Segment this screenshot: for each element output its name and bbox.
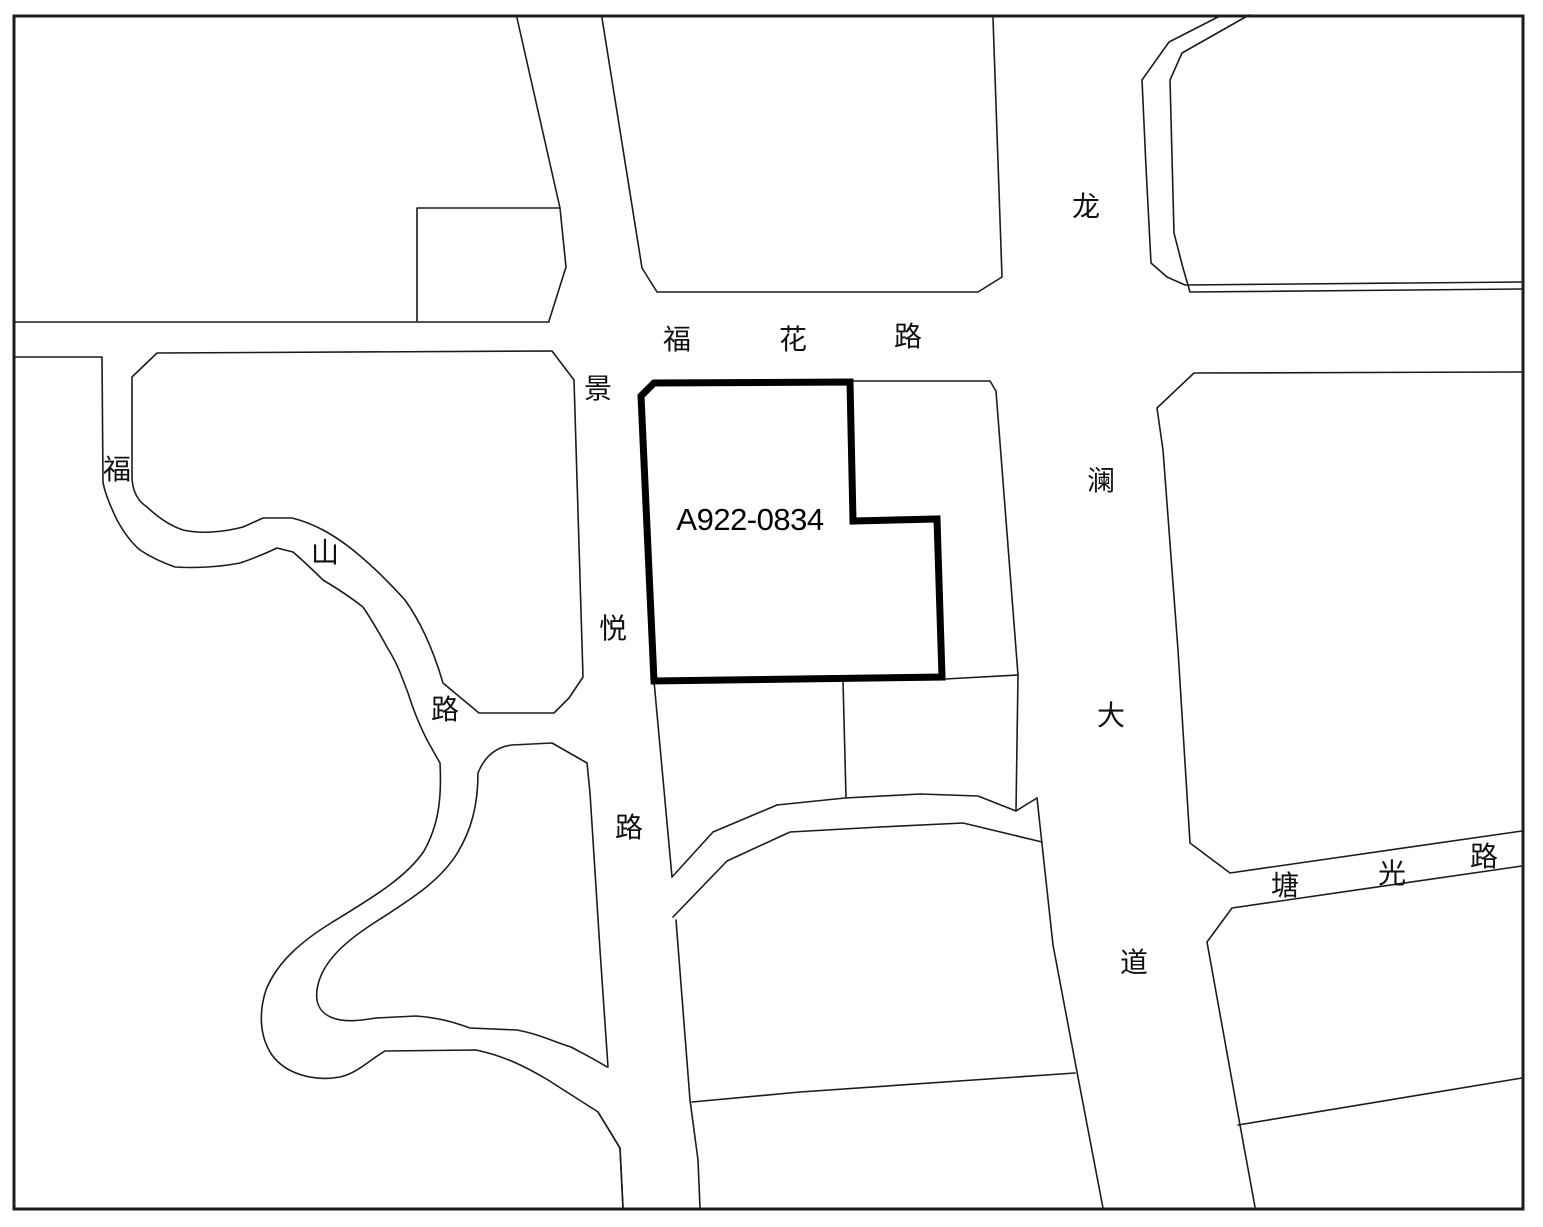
block-top-right-outer-outline	[1142, 17, 1522, 285]
road-edge-jingyue-east-low	[676, 920, 700, 1208]
road-label-fuhua-char-1: 福	[663, 326, 691, 354]
road-label-longlan-char-1: 龙	[1072, 193, 1100, 221]
road-label-longlan-char-3: 大	[1097, 702, 1125, 730]
road-label-longlan-char-2: 澜	[1087, 467, 1115, 495]
road-edge-connector-north	[672, 794, 1037, 877]
corner-parcel-outline	[417, 208, 559, 321]
junction-bar-south-edge	[478, 743, 587, 773]
parcel-division-line-east	[945, 675, 1018, 679]
road-label-fuhua-char-2: 花	[779, 326, 807, 354]
road-label-tangguang-char-3: 路	[1470, 843, 1498, 871]
road-edge-longlan-west-lower	[1037, 798, 1103, 1208]
road-label-fuhua-char-3: 路	[894, 323, 922, 351]
road-label-tangguang-char-1: 塘	[1271, 872, 1299, 900]
road-label-fushan-char-2: 山	[311, 539, 339, 567]
map-frame	[14, 16, 1523, 1209]
road-label-fushan-char-3: 路	[431, 696, 459, 724]
road-edge-longlan-west-upper	[850, 381, 1018, 811]
road-edge-fushan-outer	[102, 357, 623, 1208]
road-edge-connector-south	[673, 823, 1042, 917]
block-top-middle-outline	[602, 18, 1002, 292]
block-top-right-inner-outline	[1170, 15, 1522, 292]
road-label-longlan-char-4: 道	[1120, 949, 1148, 977]
map-drawing	[0, 0, 1543, 1227]
parcel-division-line-vertical	[843, 681, 846, 797]
road-label-jingyue-char-2: 悦	[599, 615, 627, 643]
road-label-jingyue-char-1: 景	[584, 375, 612, 403]
block-south-division-line	[692, 1073, 1075, 1102]
road-edge-jingyue-east-mid	[654, 681, 672, 877]
road-edge-tangguang-south	[1207, 866, 1522, 1207]
parcel-location-map: A922-0834 福 花 路 景 悦 路 福 山 路 龙 澜 大 道 塘 光 …	[0, 0, 1543, 1227]
road-edge-jingyue-north-west	[517, 18, 566, 321]
road-edge-jingyue-west-mid	[587, 763, 608, 1067]
road-label-fushan-char-1: 福	[103, 456, 131, 484]
road-edge-jingyue-west-low	[598, 1112, 623, 1208]
block-middle-left-outline	[132, 351, 583, 713]
road-label-jingyue-char-3: 路	[615, 814, 643, 842]
parcel-id-label: A922-0834	[676, 502, 823, 538]
block-southeast-division-line	[1238, 1078, 1522, 1125]
road-label-tangguang-char-2: 光	[1378, 860, 1406, 888]
road-edge-fushan-inner	[317, 773, 607, 1067]
block-east-outline	[1157, 372, 1522, 873]
